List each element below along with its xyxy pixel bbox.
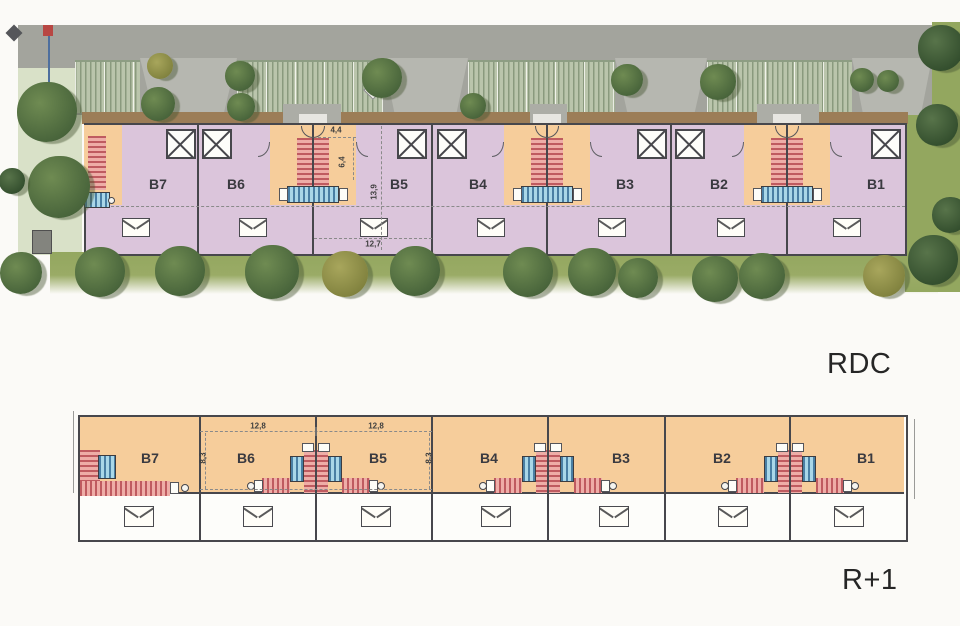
stair-landing-r1 [764,456,778,482]
tree-icon [390,246,440,296]
tree-icon [75,247,125,297]
stair-top-step [318,443,330,452]
roof-lining [73,411,74,493]
door-stop-icon [609,482,617,490]
door-stop-icon [479,482,487,490]
stair-top-step [534,443,546,452]
stair-side-step [279,188,288,201]
party-wall-rdc [431,125,433,254]
tree-icon [245,245,299,299]
stair-center-wall [789,450,791,493]
stair-arm-r1 [736,478,764,493]
stair-top-step [550,443,562,452]
stair-side-step [753,188,762,201]
stair-top-step [792,443,804,452]
tree-icon [700,64,736,100]
rooflight-icon [397,129,427,159]
stair-top-step [302,443,314,452]
dim-rdc-unit-depth: 13,9 [370,184,379,200]
rooflight-icon [637,129,667,159]
stair-landing-r1 [522,456,536,482]
rooflight-icon [166,129,196,159]
tree-icon [460,93,486,119]
stair-side-step [573,188,582,201]
dim-r1-width-b5: 12,8 [368,422,384,431]
zone-divider-rdc [86,206,905,207]
dim-line [353,138,354,180]
stair-flight-rdc [297,138,312,187]
stair-end-step [486,480,495,492]
dim-rdc-unit-width: 12,7 [365,240,381,249]
architectural-plan-canvas: B7B6B5B4B3B2B14,46,413,912,7B7B6B5B4B3B2… [0,0,960,626]
rooflight-icon [202,129,232,159]
entry-door-gap [299,114,327,123]
flag-icon [43,25,53,36]
stair-landing-r1 [98,455,116,479]
roof-window-icon [239,218,267,237]
stair-center-wall [786,138,788,188]
roof-window-icon [243,506,273,527]
unit-label-r1-b2: B2 [713,450,731,466]
stair-end-step [170,482,179,494]
rooflight-icon [675,129,705,159]
tree-icon [692,256,738,302]
tree-icon [155,246,205,296]
party-wall-r1 [199,417,201,540]
tree-icon [618,258,658,298]
stair-arm-r1 [80,481,170,496]
roof-lining [914,419,915,499]
dim-line [381,126,382,250]
stair-flight-rdc [788,138,803,187]
stair-center-wall [547,450,549,493]
unit-label-r1-b6: B6 [237,450,255,466]
party-wall-r1 [431,417,433,540]
tree-icon [0,252,42,294]
roof-window-icon [360,218,388,237]
unit-label-rdc-b7: B7 [149,176,167,192]
stair-side-step [813,188,822,201]
unit-label-rdc-b4: B4 [469,176,487,192]
entry-door-gap [773,114,801,123]
tree-icon [908,235,958,285]
roof-window-icon [361,506,391,527]
unit-label-r1-b4: B4 [480,450,498,466]
stair-top-step [776,443,788,452]
stair-landing-r1 [328,456,342,482]
door-stop-icon [721,482,729,490]
roof-window-icon [717,218,745,237]
party-wall-r1 [664,417,666,540]
tree-icon [362,58,402,98]
stair-center-wall [546,138,548,188]
stair-landing-terrace [521,186,573,203]
tree-icon [863,255,905,297]
roof-window-icon [481,506,511,527]
door-stop-icon [851,482,859,490]
tree-icon [739,253,785,299]
stair-arm-r1 [494,478,522,493]
tree-icon [503,247,553,297]
stair-flight-rdc [88,136,106,190]
stair-landing-r1 [290,456,304,482]
door-stop-icon [181,484,189,492]
roof-window-icon [598,218,626,237]
party-wall-rdc [197,125,199,254]
unit-label-r1-b1: B1 [857,450,875,466]
tree-icon [17,82,77,142]
dim-r1-depth-left: 8,3 [199,452,208,463]
stair-center-wall [315,450,317,493]
unit-label-r1-b3: B3 [612,450,630,466]
dim-tick [315,427,317,436]
unit-label-rdc-b1: B1 [867,176,885,192]
stair-end-step [254,480,263,492]
roof-window-icon [834,506,864,527]
tree-icon [141,87,175,121]
tree-icon [932,197,960,233]
tree-icon [877,70,899,92]
stair-landing-terrace [761,186,813,203]
stair-landing-r1 [802,456,816,482]
stair-arm-r1 [816,478,844,493]
stair-landing-terrace [287,186,339,203]
rooflight-icon [871,129,901,159]
plan-title-rdc: RDC [827,348,891,381]
tree-icon [916,104,958,146]
stair-flight-rdc [771,138,786,187]
tree-icon [850,68,874,92]
dim-rdc-entry-depth: 6,4 [338,156,347,167]
unit-label-rdc-b2: B2 [710,176,728,192]
roof-window-icon [718,506,748,527]
entry-door-gap [533,114,561,123]
tree-icon [147,53,173,79]
stair-side-step [513,188,522,201]
dim-r1-depth-right: 8,3 [425,452,434,463]
garden-strip [75,60,140,113]
tree-icon [28,156,90,218]
roof-window-icon [122,218,150,237]
plan-title-r1: R+1 [842,564,898,597]
unit-label-rdc-b3: B3 [616,176,634,192]
stair-center-wall [312,138,314,188]
dim-line [318,137,356,138]
utility-box-icon [32,230,52,254]
tree-icon [611,64,643,96]
roof-window-icon [477,218,505,237]
roof-window-icon [599,506,629,527]
party-wall-rdc [670,125,672,254]
stair-landing-r1 [560,456,574,482]
tree-icon [322,251,368,297]
tree-icon [227,93,255,121]
stair-flight-rdc [314,138,329,187]
tree-icon [568,248,616,296]
unit-label-rdc-b6: B6 [227,176,245,192]
rooflight-icon [437,129,467,159]
dim-line [200,489,432,490]
roof-window-icon [124,506,154,527]
stair-arm-r1 [574,478,602,493]
unit-label-rdc-b5: B5 [390,176,408,192]
stair-flight-rdc [531,138,546,187]
stair-arm-r1 [342,478,370,493]
dim-rdc-entry-width: 4,4 [330,126,341,135]
tree-icon [918,25,960,71]
stair-flight-rdc [548,138,563,187]
unit-label-r1-b5: B5 [369,450,387,466]
door-stop-icon [108,197,115,204]
roof-window-icon [833,218,861,237]
dim-r1-width-b6: 12,8 [250,422,266,431]
unit-label-r1-b7: B7 [141,450,159,466]
stair-arm-r1 [262,478,290,493]
stair-side-step [339,188,348,201]
tree-icon [225,61,255,91]
stair-end-step [728,480,737,492]
